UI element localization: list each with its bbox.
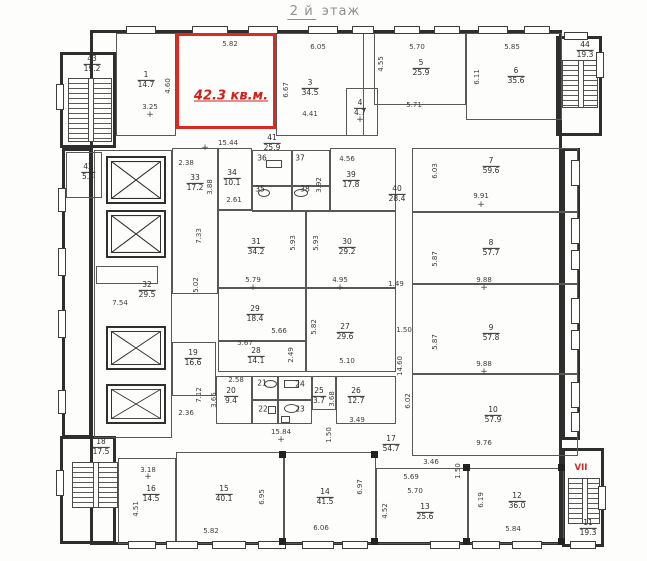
dimension-label: 5.87 [431,334,439,350]
window [128,541,156,549]
dimension-label: 5.70 [409,43,425,51]
dimension-label: 5.85 [504,43,520,51]
room-label-39: 3917.8 [343,171,360,189]
room-label-31: 3134.2 [248,238,265,256]
room-label-26: 2612.7 [348,387,365,405]
dimension-label: 6.11 [473,69,481,85]
dimension-label: 7.12 [195,387,203,403]
dimension-label: 3.92 [315,177,323,193]
dimension-tick: + [277,435,285,445]
dimension-label: 5.10 [339,357,355,365]
dimension-label: 2.58 [228,376,244,384]
room-label-29: 2918.4 [247,305,264,323]
window [342,541,368,549]
room-label-37: 37 [295,155,305,164]
room-label-16: 1614.5 [143,485,160,503]
room-label-9: 957.8 [483,324,500,342]
window [478,26,508,34]
highlighted-area-label: 42.3 кв.м. [194,89,268,104]
column [371,538,378,545]
window [571,382,580,408]
dimension-label: 4.56 [339,155,355,163]
dimension-tick: + [480,367,488,377]
window [571,160,580,186]
room-label-42: 425.8 [81,163,95,181]
room-label-28: 2814.1 [248,347,265,365]
dimension-label: 2.61 [226,196,242,204]
dimension-label: 4.60 [164,78,172,94]
dimension-label: 7.33 [195,228,203,244]
dimension-label: 3.49 [349,416,365,424]
dimension-label: 3.88 [206,179,214,195]
window [571,298,580,324]
room-label-27: 2729.6 [337,323,354,341]
room-label-22: 22 [258,406,268,415]
window [394,26,420,34]
room-label-36: 36 [257,155,267,164]
dimension-label: 9.88 [476,360,492,368]
stairwell-marker-vii: VII [575,463,588,473]
room-label-8: 857.7 [483,239,500,257]
dimension-label: 6.05 [310,43,326,51]
dimension-label: 5.87 [431,251,439,267]
room-label-25: 253.7 [312,387,326,405]
room-label-40: 4028.4 [389,185,406,203]
dimension-label: 5.66 [271,327,287,335]
floor-number: 2 й [287,4,317,20]
room-label-21: 21 [257,380,267,389]
dimension-label: 6.67 [282,82,290,98]
dimension-label: 5.82 [222,40,238,48]
page-title: 2 й этаж [287,4,360,19]
window [524,26,550,34]
column [558,538,565,545]
room-outline-33 [172,148,218,294]
sink-fixture [266,160,282,168]
column [463,538,470,545]
dimension-label: 4.55 [377,56,385,72]
window [430,541,460,549]
dimension-label: 5.79 [245,276,261,284]
window [212,541,246,549]
dimension-label: 5.67 [237,339,253,347]
room-label-17: 1754.7 [383,435,400,453]
dimension-label: 5.69 [403,473,419,481]
dimension-label: 14.60 [396,356,404,376]
column [279,451,286,458]
dimension-label: 6.97 [356,479,364,495]
dimension-label: 6.19 [477,492,485,508]
room-label-38: 38 [300,186,310,195]
dimension-label: 3.68 [328,391,336,407]
dimension-label: 4.95 [332,276,348,284]
dimension-tick: + [336,283,344,293]
window [571,218,580,244]
dimension-tick: + [201,143,209,153]
window [571,330,580,350]
dimension-tick: + [480,283,488,293]
dimension-label: 6.06 [313,524,329,532]
room-label-14: 1441.5 [317,488,334,506]
room-label-6: 635.6 [508,67,525,85]
dimension-label: 3.46 [423,458,439,466]
floor-word: этаж [322,4,360,19]
room-outline-26 [336,376,396,424]
dimension-label: 2.38 [178,159,194,167]
room-label-10: 1057.9 [485,406,502,424]
window [571,412,580,432]
dimension-label: 4.52 [381,503,389,519]
dimension-label: 9.76 [476,439,492,447]
room-label-33: 3317.2 [187,174,204,192]
dimension-label: 6.02 [404,393,412,409]
sink-fixture [281,416,290,423]
column [371,451,378,458]
dimension-label: 3.65 [210,392,218,408]
dimension-label: 3.25 [142,103,158,111]
room-label-18: 1817.5 [93,438,110,456]
room-label-4: 44.7 [354,99,366,117]
window [434,26,460,34]
elevator-shaft [106,384,166,424]
room-label-3: 334.5 [302,79,319,97]
window [58,248,66,276]
window [302,541,334,549]
room-label-5: 525.9 [413,59,430,77]
dimension-label: 1.50 [454,463,462,479]
room-label-7: 759.6 [483,157,500,175]
dimension-tick: + [249,283,257,293]
dimension-label: 9.88 [476,276,492,284]
window [571,250,580,270]
room-label-35: 35 [255,186,265,195]
elevator-shaft [106,210,166,258]
room-label-23: 23 [295,406,305,415]
dimension-label: 15.84 [271,428,291,436]
column [558,464,565,471]
window [352,26,374,34]
room-label-24: 24 [295,381,305,390]
dimension-tick: + [477,200,485,210]
room-label-44: 4419.3 [577,41,594,59]
room-label-32: 3229.5 [139,281,156,299]
dimension-label: 2.36 [178,409,194,417]
stairs-18 [72,462,118,508]
room-label-34: 3410.1 [224,169,241,187]
window [56,84,64,110]
window [58,310,66,338]
room-label-43: 4319.2 [84,55,101,73]
dimension-label: 5.82 [203,527,219,535]
window [570,541,596,549]
dimension-label: 6.03 [431,163,439,179]
window [58,188,66,212]
dimension-label: 5.93 [312,235,320,251]
stairs-44 [562,60,598,108]
room-label-41: 4125.9 [264,134,281,152]
dimension-label: 5.93 [289,235,297,251]
column [279,538,286,545]
window [512,541,542,549]
window [56,470,64,496]
dimension-label: 1.49 [388,280,404,288]
dimension-label: 5.84 [505,525,521,533]
dimension-label: 7.54 [112,299,128,307]
room-label-15: 1540.1 [216,485,233,503]
dimension-label: 5.02 [192,277,200,293]
room-label-20: 209.4 [224,387,238,405]
room-label-11: 1119.3 [580,519,597,537]
floor-plan: 2 й этаж 42.3 кв.м. [0,0,647,561]
dimension-label: 1.50 [396,326,412,334]
column [463,464,470,471]
window [472,541,500,549]
room-label-19: 1916.6 [185,349,202,367]
dimension-label: 1.50 [325,427,333,443]
window [596,52,604,78]
dimension-label: 5.71 [406,101,422,109]
window [126,26,156,34]
dimension-label: 5.82 [310,319,318,335]
window [166,541,198,549]
elevator-shaft [106,156,166,204]
window [58,390,66,414]
dimension-label: 2.49 [287,347,295,363]
room-label-30: 3029.2 [339,238,356,256]
window [598,486,606,510]
dimension-label: 4.41 [302,110,318,118]
dimension-label: 9.91 [473,192,489,200]
window [308,26,338,34]
room-label-1: 114.7 [138,71,155,89]
room-label-12: 1236.0 [509,492,526,510]
elevator-shaft [106,326,166,370]
dimension-label: 5.70 [407,487,423,495]
dimension-label: 3.18 [140,466,156,474]
window [564,32,588,40]
dimension-label: 6.95 [258,489,266,505]
dimension-label: 15.44 [218,139,238,147]
room-label-13: 1325.6 [417,503,434,521]
dimension-label: 4.51 [132,501,140,517]
stairs-43 [68,78,112,142]
sink-fixture [268,406,276,414]
dimension-tick: + [146,110,154,120]
